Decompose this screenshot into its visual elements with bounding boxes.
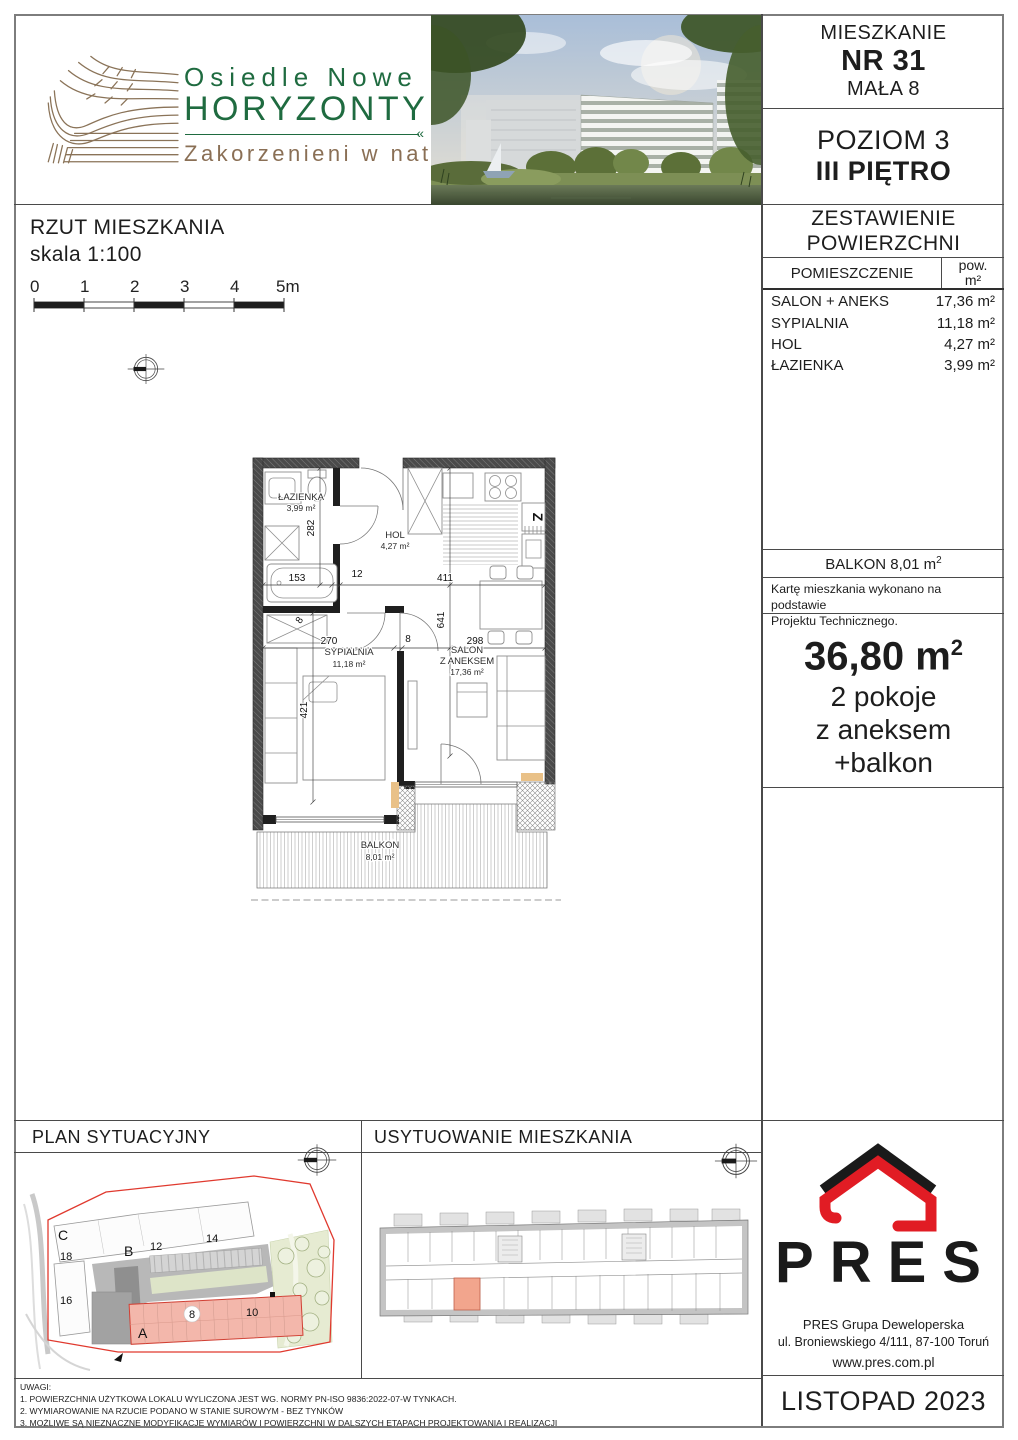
areas-title-line1: ZESTAWIENIE bbox=[811, 206, 955, 231]
areas-title-cell: ZESTAWIENIE POWIERZCHNI bbox=[763, 205, 1004, 257]
room-label: Z ANEKSEM bbox=[440, 656, 494, 667]
room-name: HOL bbox=[771, 336, 802, 353]
note-item: 2. WYMIAROWANIE NA RZUCIE PODANO W STANI… bbox=[20, 1405, 740, 1417]
building-floor-map bbox=[370, 1198, 758, 1340]
balcony-row-text: BALKON 8,01 m2 bbox=[825, 555, 941, 573]
developer-logo: PRES bbox=[768, 1130, 1004, 1290]
room-area: 17,36 m² bbox=[936, 293, 995, 310]
site-label: 16 bbox=[60, 1295, 72, 1307]
site-plan-title: PLAN SYTUACYJNY bbox=[32, 1127, 211, 1148]
room-name: ŁAZIENKA bbox=[771, 357, 844, 374]
divider bbox=[763, 1375, 1004, 1376]
room-area: 11,18 m² bbox=[937, 315, 995, 332]
site-plan-map: C 18 B 12 14 16 A 8 10 bbox=[18, 1164, 358, 1376]
dim-label: 153 bbox=[289, 573, 306, 584]
room-label: ŁAZIENKA bbox=[278, 492, 325, 503]
level-line2: III PIĘTRO bbox=[816, 156, 952, 187]
north-indicator bbox=[713, 1138, 759, 1184]
location-title: USYTUOWANIE MIESZKANIA bbox=[374, 1127, 632, 1148]
divider bbox=[763, 787, 1004, 788]
threshold-accent bbox=[391, 782, 399, 808]
apartment-title-cell: MIESZKANIE NR 31 MAŁA 8 bbox=[763, 16, 1004, 106]
divider bbox=[14, 1378, 762, 1379]
divider bbox=[14, 1152, 762, 1153]
areas-title-line2: POWIERZCHNI bbox=[807, 231, 961, 256]
apartment-label: MIESZKANIE bbox=[820, 22, 946, 45]
table-header-area-line2: m² bbox=[965, 273, 981, 288]
total-area: 36,80 m2 bbox=[804, 625, 963, 679]
room-area-label: 8,01 m² bbox=[366, 852, 395, 862]
scale-tick-label: 4 bbox=[230, 277, 239, 296]
apartment-location-highlight bbox=[454, 1278, 480, 1310]
room-area-label: 3,99 m² bbox=[287, 503, 316, 513]
summary-cell: 36,80 m2 2 pokoje z aneksem +balkon bbox=[763, 627, 1004, 777]
table-row: SALON + ANEKS17,36 m² bbox=[763, 291, 1004, 312]
dining-set bbox=[480, 566, 542, 644]
technical-note: Kartę mieszkania wykonano na podstawie P… bbox=[771, 581, 999, 630]
notes-title: UWAGI: bbox=[20, 1381, 740, 1393]
dim-label: 270 bbox=[321, 636, 338, 647]
scale-tick-label: 3 bbox=[180, 277, 189, 296]
dim-label: 421 bbox=[299, 701, 310, 718]
brand-name-line1: Osiedle Nowe bbox=[184, 62, 418, 93]
area-table-rows: SALON + ANEKS17,36 m² SYPIALNIA11,18 m² … bbox=[763, 291, 1004, 377]
kitchen-mark: Z bbox=[530, 513, 546, 522]
dim-label: 12 bbox=[351, 569, 363, 580]
issue-date: LISTOPAD 2023 bbox=[763, 1377, 1004, 1425]
total-area-sup: 2 bbox=[951, 635, 963, 660]
room-name: SYPIALNIA bbox=[771, 315, 849, 332]
threshold-accent bbox=[521, 773, 543, 781]
building-name: MAŁA 8 bbox=[847, 78, 920, 101]
scale-bar: 0 1 2 3 4 5m bbox=[26, 276, 306, 326]
room-label: BALKON bbox=[361, 840, 400, 851]
balcony-wall-stub bbox=[517, 782, 555, 830]
divider bbox=[361, 1120, 362, 1378]
brand-logo-icon bbox=[28, 40, 180, 164]
site-label: 18 bbox=[60, 1251, 72, 1263]
table-header-area-line1: pow. bbox=[959, 258, 988, 273]
balcony-row: BALKON 8,01 m2 bbox=[763, 550, 1004, 577]
room-area: 4,27 m² bbox=[944, 336, 995, 353]
dim-label: 411 bbox=[437, 573, 453, 584]
room-label: HOL bbox=[385, 530, 405, 541]
table-header-room: POMIESZCZENIE bbox=[763, 258, 941, 288]
divider bbox=[763, 577, 1004, 578]
room-name: SALON + ANEKS bbox=[771, 293, 889, 310]
note-line1: Kartę mieszkania wykonano na podstawie bbox=[771, 581, 999, 613]
scale-tick-label: 2 bbox=[130, 277, 139, 296]
level-line1: POZIOM 3 bbox=[817, 125, 950, 156]
balcony-wall-stub bbox=[397, 786, 415, 830]
room-label: SALON bbox=[451, 645, 483, 656]
divider bbox=[14, 1120, 1004, 1121]
north-indicator bbox=[126, 349, 166, 389]
site-label: 12 bbox=[150, 1241, 162, 1253]
table-header-area: pow. m² bbox=[942, 258, 1004, 288]
kitchen-floor bbox=[443, 503, 518, 565]
site-label: B bbox=[124, 1243, 133, 1259]
plan-title: RZUT MIESZKANIA bbox=[30, 215, 225, 241]
developer-website: www.pres.com.pl bbox=[763, 1355, 1004, 1370]
total-area-value: 36,80 m bbox=[804, 635, 951, 679]
brand-name-line2: HORYZONTY bbox=[184, 90, 428, 129]
room-area-label: 4,27 m² bbox=[381, 541, 410, 551]
developer-address: ul. Broniewskiego 4/111, 87-100 Toruń bbox=[763, 1334, 1004, 1351]
arrow-left-icon: « bbox=[416, 125, 424, 141]
dim-label: 641 bbox=[436, 611, 447, 628]
summary-line: +balkon bbox=[834, 746, 933, 779]
developer-logo-text: PRES bbox=[775, 1230, 997, 1290]
balcony-label: BALKON 8,01 m bbox=[825, 556, 936, 573]
room-area-label: 17,36 m² bbox=[450, 667, 484, 677]
apartment-number: NR 31 bbox=[841, 45, 926, 78]
note-item: 1. POWIERZCHNIA UŻYTKOWA LOKALU WYLICZON… bbox=[20, 1393, 740, 1405]
site-label: A bbox=[138, 1325, 148, 1341]
site-label: 14 bbox=[206, 1233, 218, 1245]
plan-scale: skala 1:100 bbox=[30, 242, 142, 268]
level-cell: POZIOM 3 III PIĘTRO bbox=[763, 109, 1004, 203]
site-label: C bbox=[58, 1227, 68, 1243]
scale-tick-label: 5m bbox=[276, 277, 300, 296]
scale-tick-label: 0 bbox=[30, 277, 39, 296]
site-label: 10 bbox=[246, 1307, 258, 1319]
balcony-sup: 2 bbox=[936, 555, 942, 566]
table-row: SYPIALNIA11,18 m² bbox=[763, 312, 1004, 333]
scale-tick-label: 1 bbox=[80, 277, 89, 296]
dim-label: 8 bbox=[405, 634, 411, 645]
notes-block: UWAGI: 1. POWIERZCHNIA UŻYTKOWA LOKALU W… bbox=[20, 1381, 740, 1429]
note-item: 3. MOŻLIWE SĄ NIEZNACZNE MODYFIKACJE WYM… bbox=[20, 1417, 740, 1429]
table-row: ŁAZIENKA3,99 m² bbox=[763, 355, 1004, 376]
kitchen-fixtures: Z bbox=[443, 473, 546, 568]
room-label: SYPIALNIA bbox=[324, 647, 374, 658]
hero-photo bbox=[431, 15, 761, 205]
summary-line: z aneksem bbox=[816, 713, 951, 746]
hall-wardrobe bbox=[408, 468, 442, 534]
brand-rule: « bbox=[185, 134, 419, 135]
room-area-label: 11,18 m² bbox=[333, 659, 366, 669]
apartment-card-page: Osiedle Nowe HORYZONTY « Zakorzenieni w … bbox=[0, 0, 1018, 1440]
room-area: 3,99 m² bbox=[944, 357, 995, 374]
table-row: HOL4,27 m² bbox=[763, 334, 1004, 355]
floor-plan: Z bbox=[245, 448, 575, 910]
summary-line: 2 pokoje bbox=[831, 680, 937, 713]
building-a-highlight bbox=[129, 1295, 303, 1344]
developer-name: PRES Grupa Deweloperska bbox=[763, 1316, 1004, 1334]
dim-label: 282 bbox=[306, 519, 317, 536]
site-label: 8 bbox=[189, 1309, 195, 1321]
